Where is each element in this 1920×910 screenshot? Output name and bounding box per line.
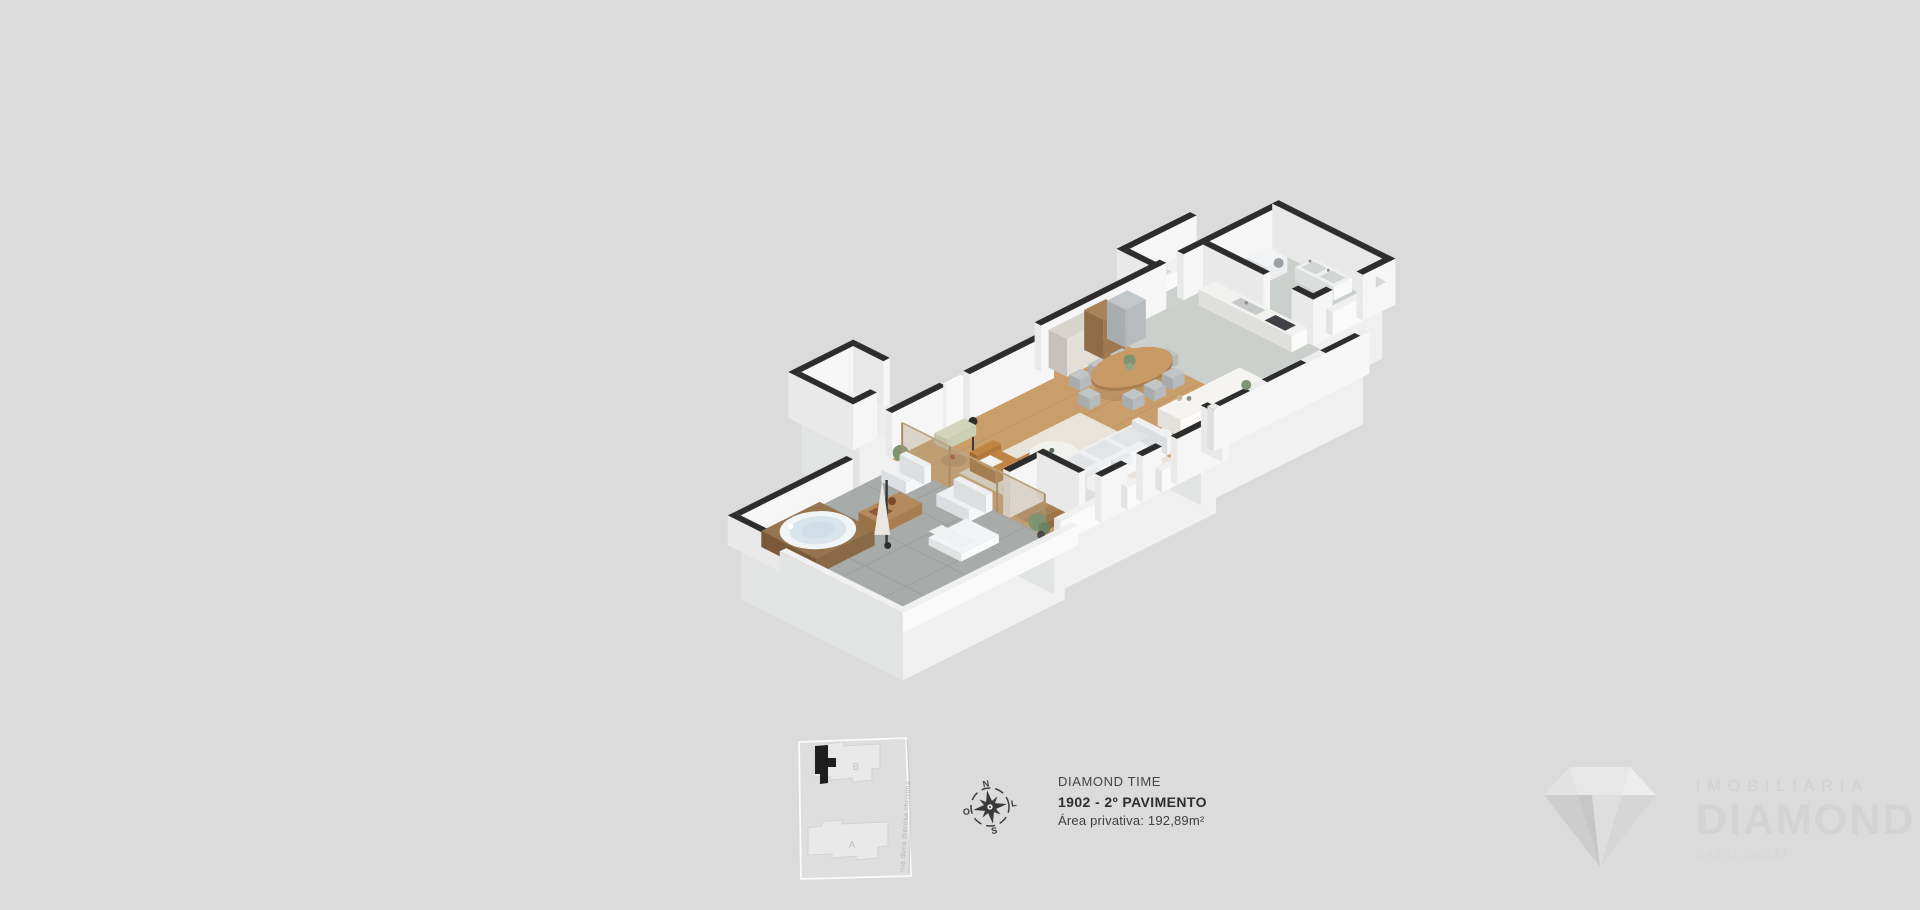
wall xyxy=(883,358,889,407)
wall xyxy=(1171,436,1178,485)
terrace-armchair-back xyxy=(924,464,931,485)
island-decor xyxy=(1187,396,1192,401)
building-b-label: B xyxy=(853,762,860,773)
wall xyxy=(963,371,970,420)
wall xyxy=(1307,296,1314,345)
wall xyxy=(886,410,893,459)
wall xyxy=(1177,251,1184,300)
window-sill xyxy=(1156,467,1163,492)
compass-icon: N S O L xyxy=(962,779,1018,835)
window-sill xyxy=(1121,485,1127,510)
brand-watermark: IMOBILIÁRIA DIAMOND CRECI 29513J xyxy=(1696,778,1915,861)
terrace-bowl xyxy=(888,497,896,505)
wall xyxy=(1095,474,1102,523)
umbrella-base xyxy=(884,542,891,549)
wall xyxy=(1136,453,1143,502)
compass-west-label: O xyxy=(962,806,971,817)
watermark-creci: CRECI 29513J xyxy=(1696,849,1915,861)
compass-east-label: L xyxy=(1010,798,1018,809)
wall xyxy=(1035,322,1041,371)
island-decor xyxy=(1176,395,1182,401)
watermark-diamond: DIAMOND xyxy=(1696,799,1915,842)
compass-north-label: N xyxy=(982,779,990,789)
facade-wall xyxy=(1207,406,1213,451)
floorplan-page: { "page": {"background": "#dbdbdb", "wid… xyxy=(0,0,1920,910)
private-area: Área privativa: 192,89m² xyxy=(1058,813,1207,828)
washer-door xyxy=(1274,258,1284,268)
faucet xyxy=(1244,301,1248,305)
diamond-gem-icon xyxy=(1540,763,1662,877)
wall xyxy=(788,372,795,421)
parapet xyxy=(896,610,903,633)
sill-planter xyxy=(1241,380,1251,390)
tub-headrest xyxy=(787,523,793,529)
unit-title: 1902 - 2º PAVIMENTO xyxy=(1058,794,1207,810)
faucet xyxy=(1308,260,1311,263)
terrace-sofa-back xyxy=(986,492,992,513)
site-key-map: B A rua dona theresa christina xyxy=(796,734,918,882)
compass-south-label: S xyxy=(990,825,998,835)
table-plant xyxy=(1126,363,1134,371)
faucet xyxy=(1327,269,1330,272)
entry-door xyxy=(943,383,946,429)
unit-info-block: DIAMOND TIME 1902 - 2º PAVIMENTO Área pr… xyxy=(1058,774,1207,828)
project-name: DIAMOND TIME xyxy=(1058,774,1207,789)
wall xyxy=(1356,272,1363,321)
window-sill xyxy=(1326,309,1332,336)
building-a-label: A xyxy=(849,840,856,851)
watermark-imobiliaria: IMOBILIÁRIA xyxy=(1696,778,1915,796)
wall xyxy=(847,401,854,450)
